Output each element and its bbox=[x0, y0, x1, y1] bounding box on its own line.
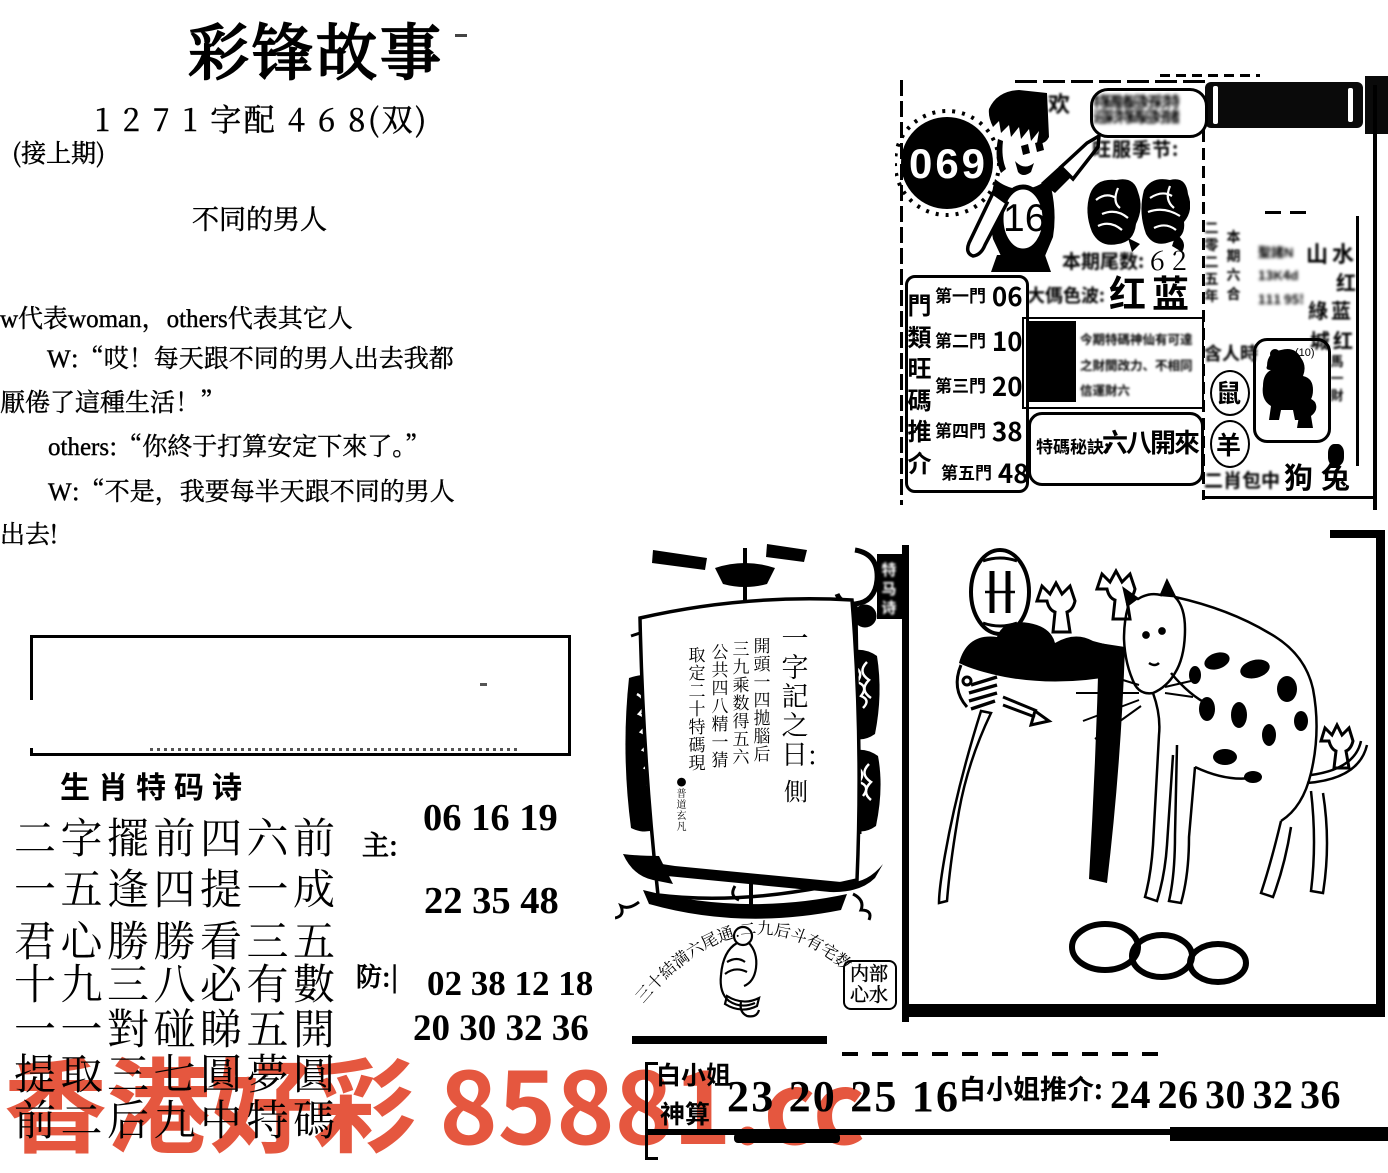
svg-text:069: 069 bbox=[909, 140, 985, 187]
svg-text:(10): (10) bbox=[1295, 347, 1315, 359]
svg-text:16: 16 bbox=[1003, 197, 1046, 240]
